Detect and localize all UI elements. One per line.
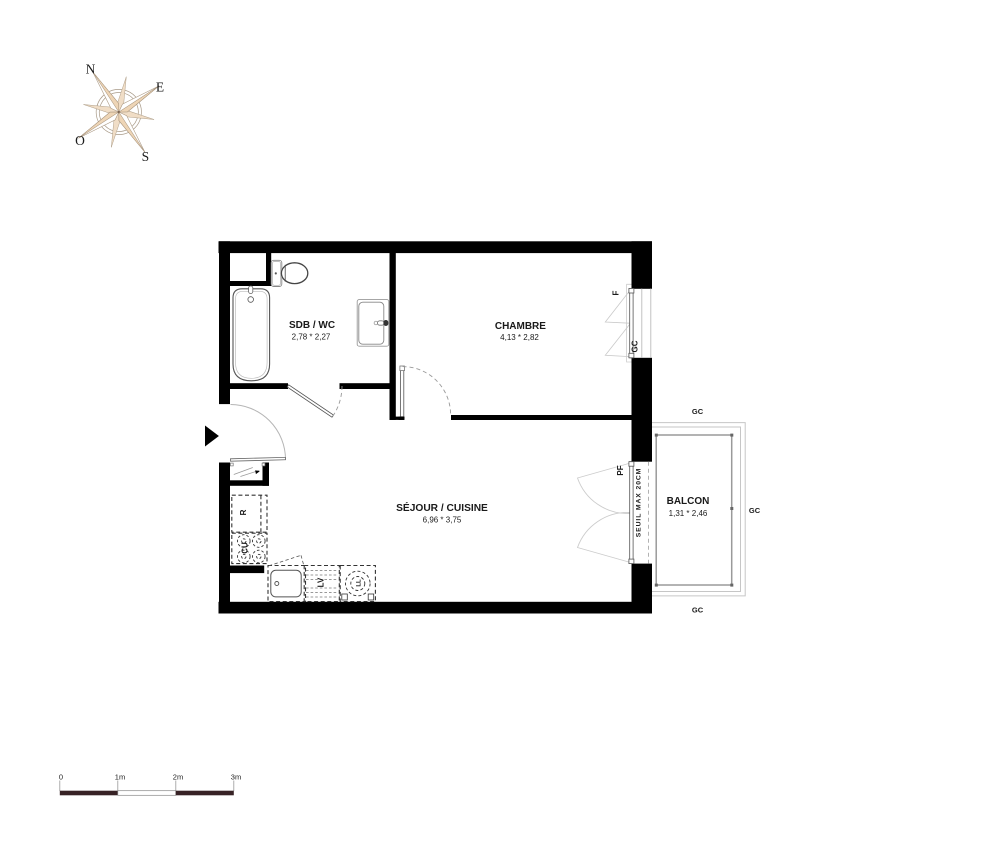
svg-text:CHAMBRE: CHAMBRE bbox=[495, 321, 546, 332]
svg-text:S: S bbox=[142, 149, 150, 164]
svg-text:SÉJOUR / CUISINE: SÉJOUR / CUISINE bbox=[396, 501, 488, 514]
svg-text:GC: GC bbox=[630, 340, 639, 352]
svg-text:SDB / WC: SDB / WC bbox=[289, 320, 335, 331]
svg-text:4,13 * 2,82: 4,13 * 2,82 bbox=[500, 333, 539, 342]
svg-text:GC: GC bbox=[749, 506, 761, 515]
svg-text:O: O bbox=[75, 133, 85, 148]
svg-text:GC: GC bbox=[692, 605, 704, 614]
svg-text:GC: GC bbox=[692, 407, 704, 416]
svg-text:2m: 2m bbox=[173, 773, 183, 782]
svg-text:E: E bbox=[156, 80, 164, 95]
svg-text:R: R bbox=[239, 509, 248, 515]
svg-text:SEUIL MAX 20CM: SEUIL MAX 20CM bbox=[636, 468, 643, 538]
svg-text:0: 0 bbox=[59, 773, 63, 782]
svg-text:1m: 1m bbox=[115, 773, 125, 782]
svg-text:F: F bbox=[612, 290, 621, 295]
svg-text:CU: CU bbox=[241, 542, 250, 554]
svg-text:3m: 3m bbox=[231, 773, 241, 782]
svg-text:N: N bbox=[86, 62, 96, 77]
svg-text:PF: PF bbox=[616, 465, 625, 475]
svg-text:BALCON: BALCON bbox=[667, 496, 710, 507]
svg-text:LV: LV bbox=[317, 577, 326, 587]
svg-text:2,78 * 2,27: 2,78 * 2,27 bbox=[292, 333, 331, 342]
svg-text:6,96 * 3,75: 6,96 * 3,75 bbox=[423, 516, 462, 525]
svg-text:1,31 * 2,46: 1,31 * 2,46 bbox=[669, 509, 708, 518]
svg-text:LL: LL bbox=[356, 579, 362, 587]
